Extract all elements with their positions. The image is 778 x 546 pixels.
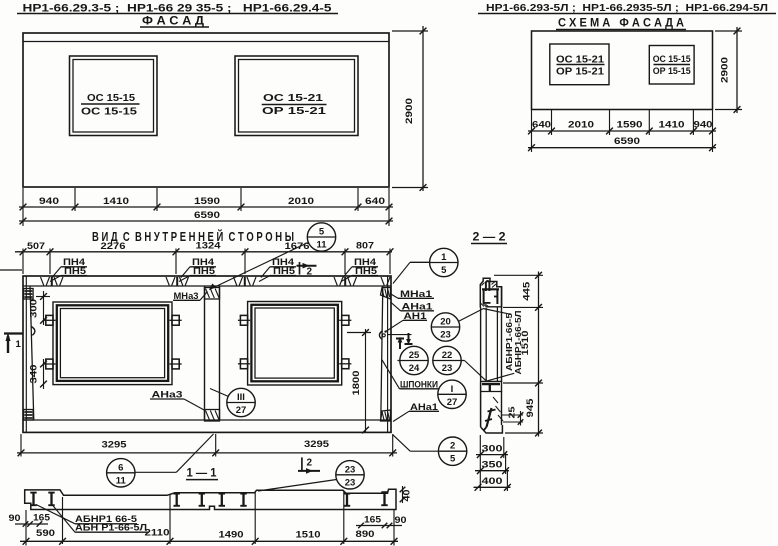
svg-text:5: 5 xyxy=(441,265,447,276)
svg-text:6: 6 xyxy=(118,462,123,473)
svg-text:2010: 2010 xyxy=(288,196,314,206)
svg-text:ОР 15-21: ОР 15-21 xyxy=(262,105,326,117)
svg-text:165: 165 xyxy=(364,515,381,525)
svg-text:27: 27 xyxy=(236,405,247,416)
svg-text:2 — 2: 2 — 2 xyxy=(473,230,506,244)
svg-text:1510: 1510 xyxy=(296,530,321,540)
svg-text:НР1-66.293-5Л ; НР1-66.2935-5: НР1-66.293-5Л ; НР1-66.2935-5Л ; НР1-66.… xyxy=(486,3,768,14)
svg-text:АНа3: АНа3 xyxy=(152,389,183,399)
svg-text:11: 11 xyxy=(316,240,327,251)
svg-text:27: 27 xyxy=(447,397,458,408)
svg-text:807: 807 xyxy=(356,241,374,251)
svg-text:24: 24 xyxy=(409,363,420,374)
svg-text:ПН5: ПН5 xyxy=(355,266,377,276)
svg-text:5: 5 xyxy=(450,454,456,465)
svg-text:507: 507 xyxy=(27,241,45,251)
svg-text:I: I xyxy=(451,384,454,395)
svg-text:III: III xyxy=(237,392,245,403)
svg-text:300: 300 xyxy=(482,444,503,454)
svg-text:1: 1 xyxy=(441,252,447,263)
svg-text:3295: 3295 xyxy=(102,440,127,450)
svg-text:АН1: АН1 xyxy=(404,311,427,321)
svg-text:2276: 2276 xyxy=(101,241,126,251)
svg-text:2: 2 xyxy=(450,441,455,452)
svg-text:940: 940 xyxy=(694,120,713,130)
svg-text:890: 890 xyxy=(356,529,375,539)
svg-text:Ф А С А Д: Ф А С А Д xyxy=(142,14,204,28)
svg-text:1490: 1490 xyxy=(219,530,244,540)
svg-text:640: 640 xyxy=(365,196,385,206)
svg-text:6590: 6590 xyxy=(194,210,220,220)
svg-text:ОС 15-21: ОС 15-21 xyxy=(263,92,323,104)
svg-text:945: 945 xyxy=(525,398,535,417)
svg-text:6590: 6590 xyxy=(614,136,640,146)
svg-text:1676: 1676 xyxy=(285,241,310,251)
svg-text:300: 300 xyxy=(28,299,38,318)
svg-text:МНа3: МНа3 xyxy=(174,291,199,301)
svg-text:1324: 1324 xyxy=(196,241,221,251)
svg-text:ОР 15-15: ОР 15-15 xyxy=(653,66,691,76)
svg-text:АНа1: АНа1 xyxy=(410,402,438,412)
svg-text:23: 23 xyxy=(345,464,356,475)
svg-text:АНа1: АНа1 xyxy=(402,301,433,311)
svg-text:ОС 15-15: ОС 15-15 xyxy=(87,92,135,104)
svg-text:1410: 1410 xyxy=(659,120,685,130)
svg-text:1590: 1590 xyxy=(194,196,220,206)
svg-text:90: 90 xyxy=(9,513,21,523)
svg-text:1590: 1590 xyxy=(617,120,643,130)
svg-text:1510: 1510 xyxy=(520,330,530,355)
svg-text:ПН5: ПН5 xyxy=(273,266,295,276)
svg-text:ОР 15-21: ОР 15-21 xyxy=(556,67,605,78)
svg-text:340: 340 xyxy=(28,364,38,383)
svg-text:40: 40 xyxy=(402,489,412,501)
svg-text:23: 23 xyxy=(442,363,453,374)
svg-text:2: 2 xyxy=(307,458,313,469)
svg-text:350: 350 xyxy=(482,460,503,470)
svg-text:23: 23 xyxy=(440,330,451,341)
svg-text:ОС 15-15: ОС 15-15 xyxy=(653,54,691,64)
svg-text:940: 940 xyxy=(39,196,59,206)
svg-text:ПН5: ПН5 xyxy=(64,266,86,276)
svg-text:1800: 1800 xyxy=(351,370,361,395)
svg-text:25: 25 xyxy=(507,406,517,418)
svg-text:ШПОНКИ: ШПОНКИ xyxy=(400,379,438,389)
svg-text:2900: 2900 xyxy=(404,98,414,124)
svg-text:С Х Е М А Ф А С А Д А: С Х Е М А Ф А С А Д А xyxy=(558,16,684,30)
svg-text:23: 23 xyxy=(345,477,356,488)
svg-text:1410: 1410 xyxy=(103,196,129,206)
svg-text:1: 1 xyxy=(16,339,22,350)
svg-text:АБН Р1-66-5Л: АБН Р1-66-5Л xyxy=(75,523,147,533)
svg-text:3295: 3295 xyxy=(304,439,329,449)
svg-text:ПН5: ПН5 xyxy=(193,266,215,276)
svg-text:22: 22 xyxy=(442,350,453,361)
svg-text:20: 20 xyxy=(440,317,451,328)
svg-text:25: 25 xyxy=(409,350,420,361)
svg-text:590: 590 xyxy=(36,528,55,538)
svg-text:2900: 2900 xyxy=(720,57,730,83)
svg-text:445: 445 xyxy=(522,282,532,301)
svg-text:5: 5 xyxy=(319,227,325,238)
svg-text:2110: 2110 xyxy=(145,528,170,538)
svg-text:165: 165 xyxy=(33,513,50,523)
svg-text:11: 11 xyxy=(116,475,127,486)
svg-text:МНа1: МНа1 xyxy=(400,289,432,299)
svg-text:ОС 15-15: ОС 15-15 xyxy=(81,105,137,117)
svg-text:1 — 1: 1 — 1 xyxy=(187,468,218,480)
svg-text:400: 400 xyxy=(482,476,503,486)
svg-text:90: 90 xyxy=(395,515,407,525)
svg-text:640: 640 xyxy=(532,120,551,130)
svg-text:2010: 2010 xyxy=(568,120,594,130)
svg-text:ОС 15-21: ОС 15-21 xyxy=(556,54,605,65)
